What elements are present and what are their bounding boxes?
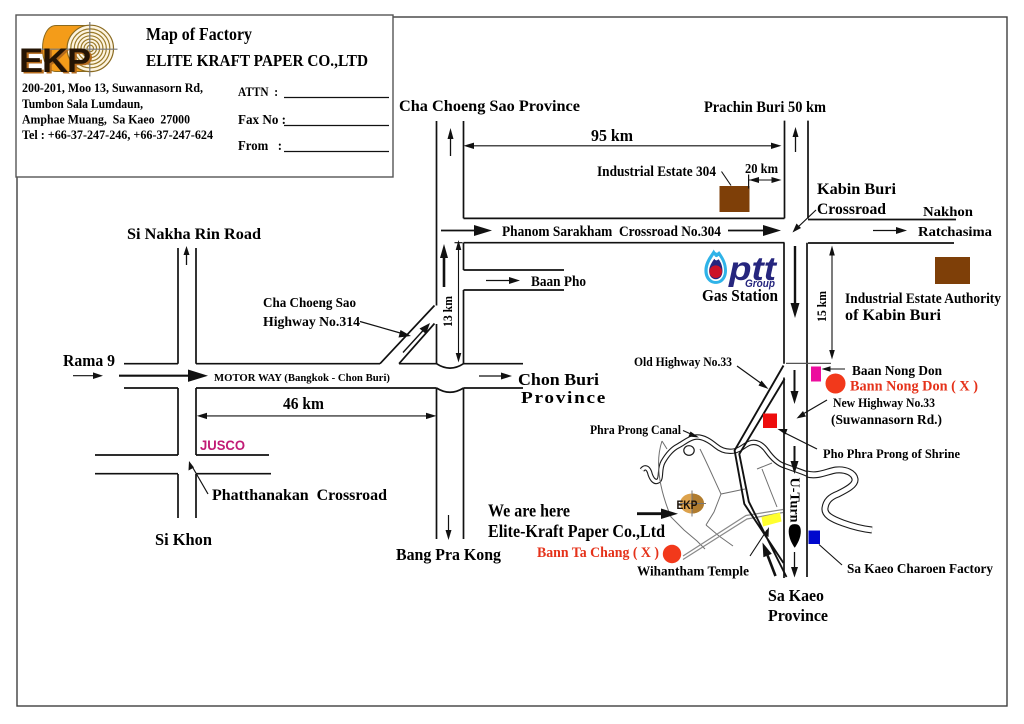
svg-text:Fax No :: Fax No : — [238, 112, 286, 127]
svg-text:Phatthanakan Crossroad: Phatthanakan Crossroad — [212, 487, 387, 504]
svg-text:Baan Nong Don: Baan Nong Don — [852, 363, 942, 378]
svg-text:Chon Buri: Chon Buri — [518, 370, 599, 389]
svg-text:EKP: EKP — [19, 42, 90, 80]
svg-text:Industrial Estate Authority: Industrial Estate Authority — [845, 291, 1002, 307]
svg-text:Nakhon: Nakhon — [923, 204, 974, 219]
svg-text:Bang Pra Kong: Bang Pra Kong — [396, 545, 502, 564]
svg-text:Crossroad: Crossroad — [817, 201, 886, 218]
svg-text:Baan Pho: Baan Pho — [531, 274, 586, 290]
svg-text:Elite-Kraft Paper Co.,Ltd: Elite-Kraft Paper Co.,Ltd — [488, 521, 665, 541]
svg-text:Tumbon Sala Lumdaun,: Tumbon Sala Lumdaun, — [22, 96, 143, 111]
svg-text:(Suwannasorn Rd.): (Suwannasorn Rd.) — [831, 413, 942, 428]
svg-text:Bann Ta Chang ( X ): Bann Ta Chang ( X ) — [537, 545, 659, 561]
svg-text:Si Nakha Rin Road: Si Nakha Rin Road — [127, 226, 261, 243]
svg-text:ELITE KRAFT PAPER CO.,LTD: ELITE KRAFT PAPER CO.,LTD — [146, 51, 368, 70]
svg-text:Old Highway No.33: Old Highway No.33 — [634, 355, 732, 369]
svg-text:Cha Choeng Sao Province: Cha Choeng Sao Province — [399, 98, 580, 115]
svg-text:of Kabin Buri: of Kabin Buri — [845, 307, 942, 324]
svg-text:ATTN :: ATTN : — [238, 85, 278, 99]
svg-text:Kabin Buri: Kabin Buri — [817, 181, 897, 198]
svg-text:EKP: EKP — [677, 500, 698, 512]
svg-text:13 km: 13 km — [440, 296, 455, 327]
svg-text:95 km: 95 km — [591, 126, 633, 145]
svg-text:200-201, Moo 13, Suwannasorn R: 200-201, Moo 13, Suwannasorn Rd, — [22, 80, 203, 95]
svg-text:15 km: 15 km — [814, 291, 829, 322]
svg-text:Map of Factory: Map of Factory — [146, 24, 252, 44]
svg-text:46 km: 46 km — [283, 394, 324, 413]
svg-text:Highway No.314: Highway No.314 — [263, 315, 360, 330]
svg-text:U-Turn: U-Turn — [788, 478, 803, 524]
svg-text:Province: Province — [521, 388, 607, 407]
svg-text:Phra Prong Canal: Phra Prong Canal — [590, 423, 681, 437]
svg-text:Cha Choeng Sao: Cha Choeng Sao — [263, 295, 356, 310]
svg-text:JUSCO: JUSCO — [200, 437, 245, 453]
svg-text:Bann Nong Don ( X ): Bann Nong Don ( X ) — [850, 379, 978, 395]
svg-text:Sa Kaeo Charoen Factory: Sa Kaeo Charoen Factory — [847, 561, 993, 576]
svg-text:Tel : +66-37-247-246, +66-37-2: Tel : +66-37-247-246, +66-37-247-624 — [22, 127, 213, 142]
svg-text:Gas Station: Gas Station — [702, 286, 778, 305]
svg-text:Industrial Estate 304: Industrial Estate 304 — [597, 164, 716, 180]
svg-text:New Highway No.33: New Highway No.33 — [833, 395, 935, 410]
svg-text:Wihantham Temple: Wihantham Temple — [637, 564, 749, 579]
svg-text:We are here: We are here — [488, 501, 570, 521]
svg-text:Pho Phra Prong of Shrine: Pho Phra Prong of Shrine — [823, 446, 960, 461]
svg-text:Ratchasima: Ratchasima — [918, 224, 992, 239]
svg-text:Province: Province — [768, 606, 828, 625]
svg-text:From :: From : — [238, 138, 282, 153]
svg-text:Rama 9: Rama 9 — [63, 351, 115, 370]
svg-text:Sa Kaeo: Sa Kaeo — [768, 586, 824, 605]
svg-text:Prachin Buri 50 km: Prachin Buri 50 km — [704, 99, 827, 116]
svg-text:Si Khon: Si Khon — [155, 530, 212, 549]
svg-text:Phanom Sarakham Crossroad No.: Phanom Sarakham Crossroad No.304 — [502, 224, 721, 240]
svg-text:MOTOR WAY (Bangkok - Chon Buri: MOTOR WAY (Bangkok - Chon Buri) — [214, 372, 390, 384]
svg-text:Amphae Muang, Sa Kaeo 27000: Amphae Muang, Sa Kaeo 27000 — [22, 112, 190, 127]
svg-text:20 km: 20 km — [745, 161, 779, 176]
